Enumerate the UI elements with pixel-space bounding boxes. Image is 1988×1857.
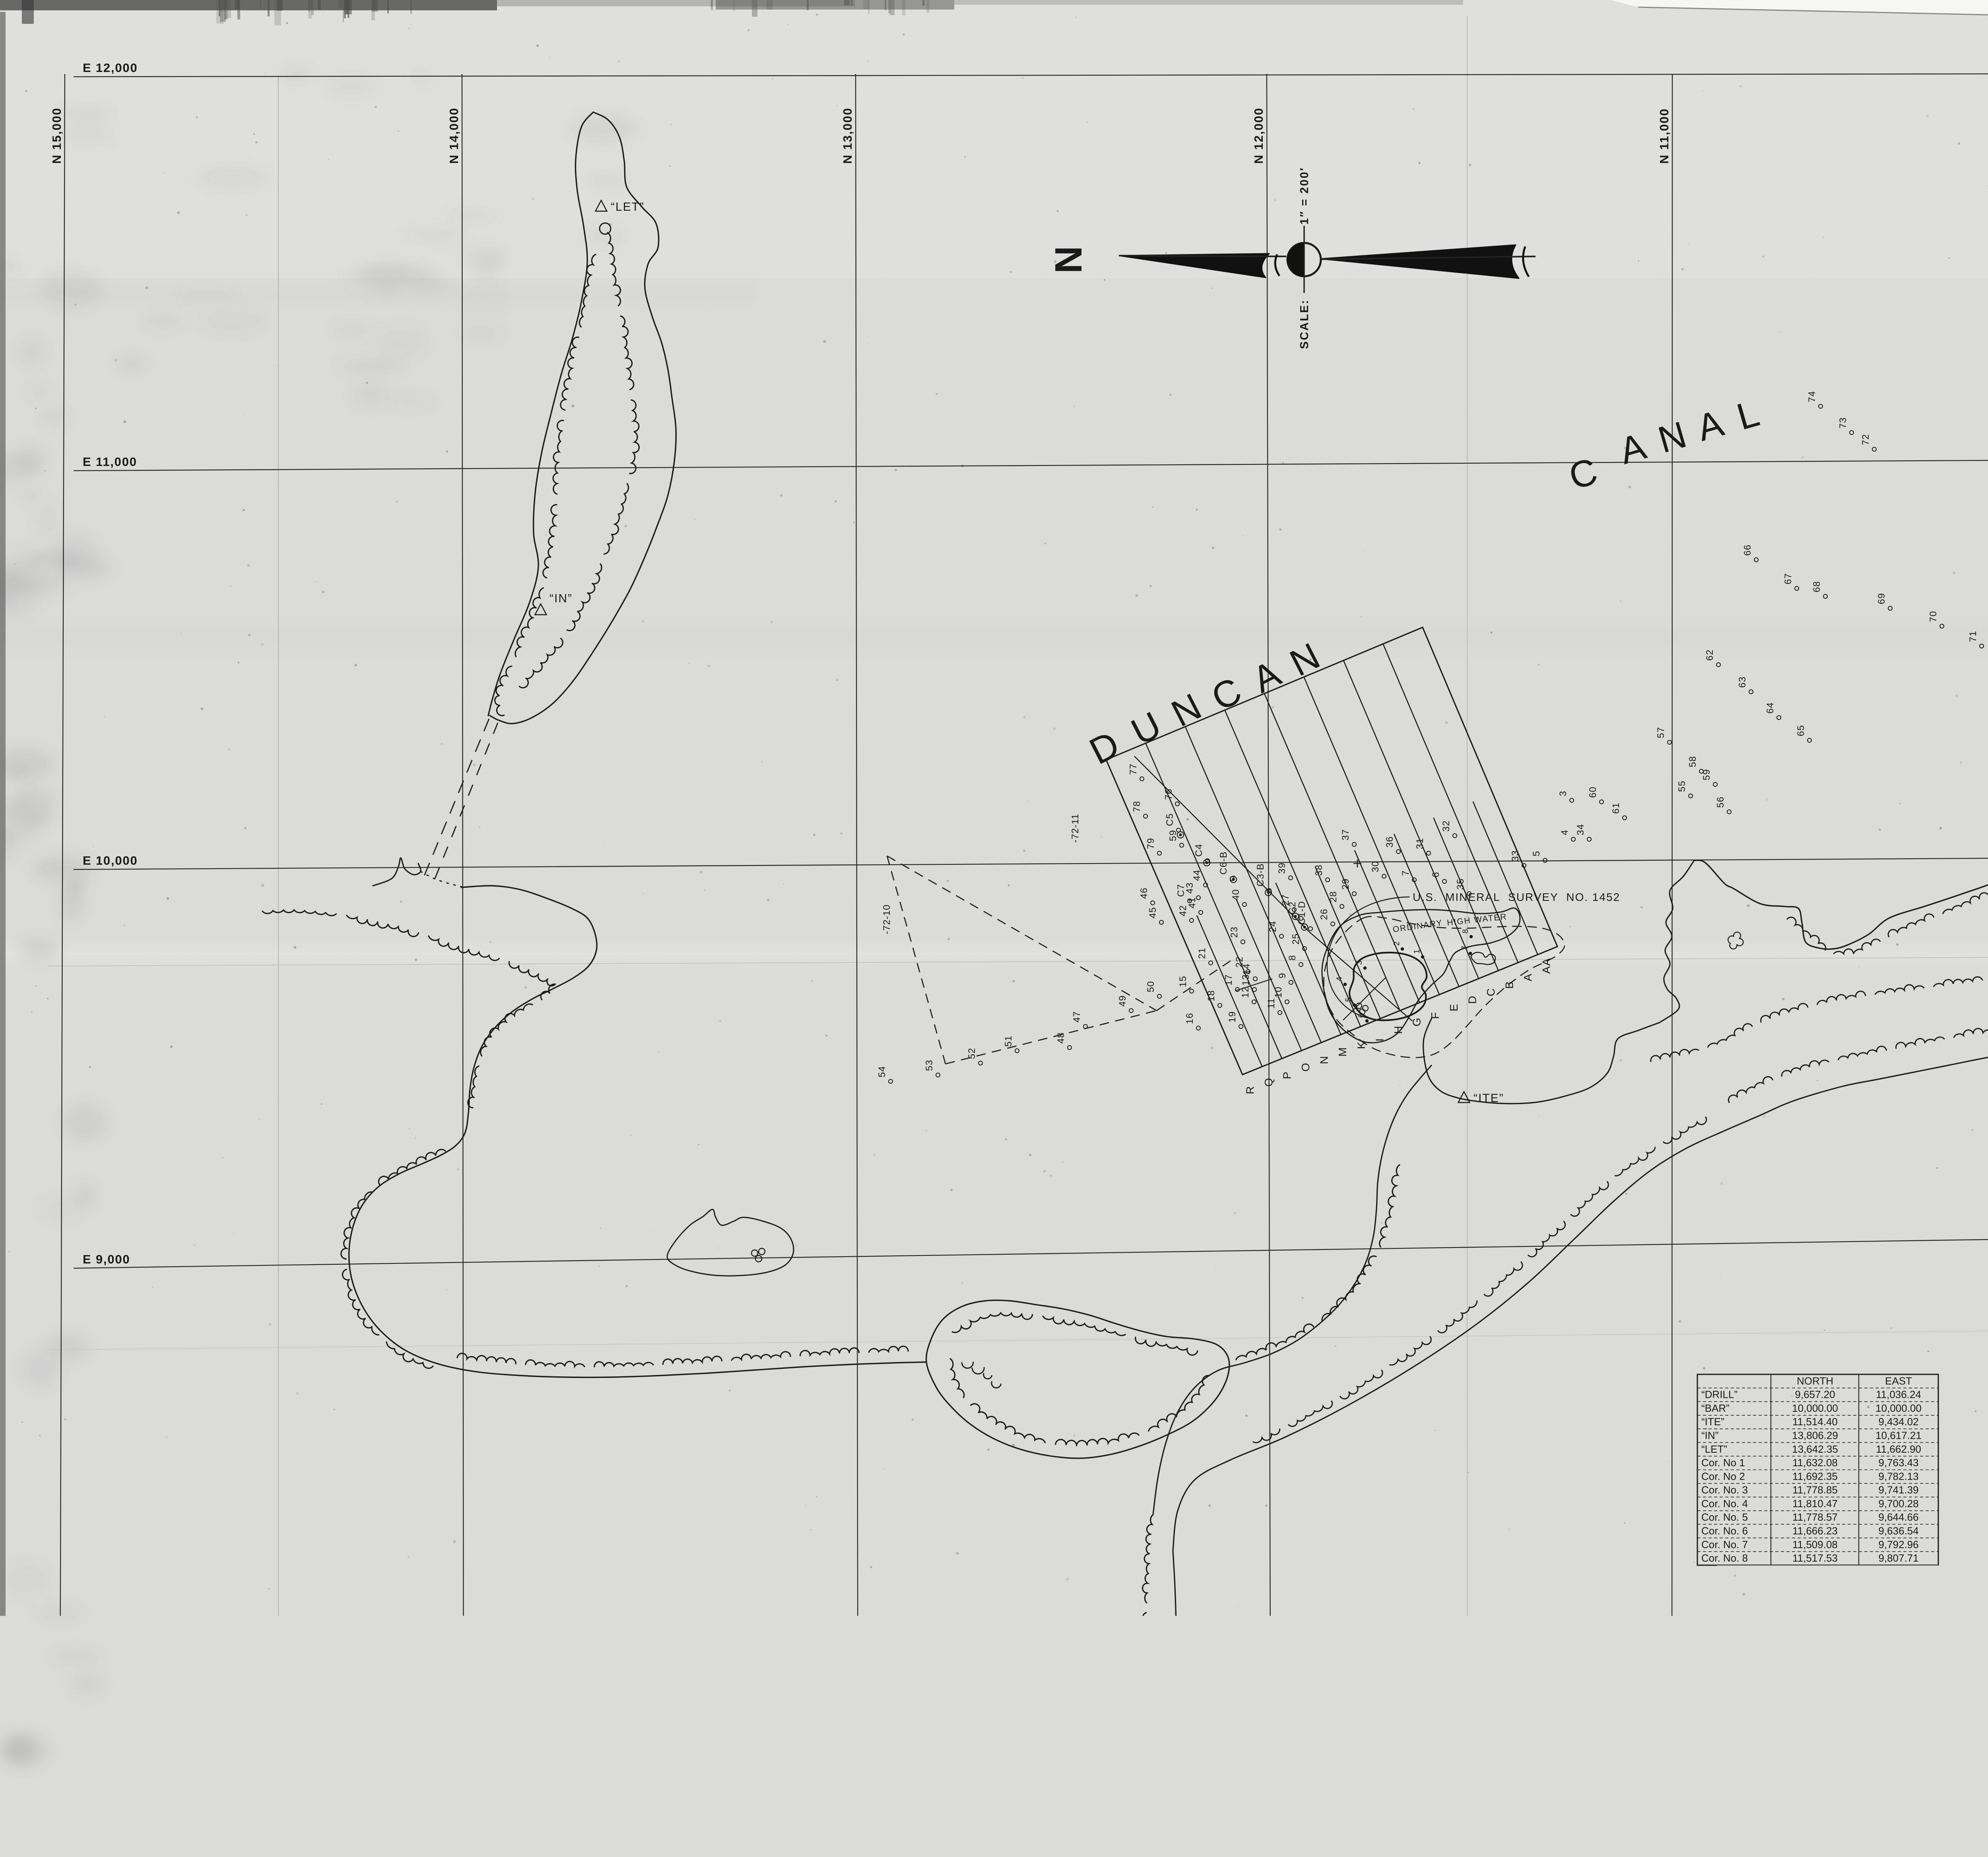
svg-text:76: 76	[1163, 788, 1174, 800]
svg-text:C1-D: C1-D	[1297, 901, 1307, 925]
svg-text:“ITE”: “ITE”	[1474, 1092, 1504, 1105]
svg-text:10,617.21: 10,617.21	[1875, 1430, 1922, 1442]
svg-text:10,000.00: 10,000.00	[1875, 1402, 1922, 1414]
svg-text:“IN”: “IN”	[549, 592, 573, 605]
svg-text:CASTLE: CASTLE	[961, 1694, 1242, 1760]
svg-text:71: 71	[1968, 631, 1978, 642]
svg-text:9,657.20: 9,657.20	[1795, 1389, 1835, 1401]
svg-text:59: 59	[1168, 830, 1178, 841]
svg-text:9,644.66: 9,644.66	[1878, 1511, 1918, 1523]
svg-text:C5: C5	[1165, 813, 1175, 826]
svg-text:9,700.28: 9,700.28	[1878, 1498, 1918, 1510]
svg-text:13,806.29: 13,806.29	[1792, 1430, 1838, 1442]
svg-text:18: 18	[1206, 990, 1217, 1001]
svg-text:Cor. No. 7: Cor. No. 7	[1701, 1539, 1748, 1550]
svg-text:AA: AA	[1540, 958, 1553, 974]
svg-text:11,514.40: 11,514.40	[1792, 1416, 1838, 1428]
svg-text:3: 3	[1355, 960, 1364, 965]
svg-text:9,763.43: 9,763.43	[1878, 1457, 1918, 1469]
svg-text:“LET”: “LET”	[611, 200, 645, 213]
svg-text:65: 65	[1796, 725, 1806, 736]
svg-text:35: 35	[1455, 878, 1466, 890]
svg-text:F: F	[1429, 1011, 1441, 1019]
svg-text:14: 14	[1241, 963, 1252, 975]
svg-text:72: 72	[1860, 434, 1871, 445]
svg-text:-72-11: -72-11	[1070, 813, 1081, 843]
svg-text:56: 56	[1715, 796, 1726, 808]
svg-text:8: 8	[1461, 928, 1470, 933]
svg-text:12: 12	[1240, 986, 1251, 998]
svg-text:N 12,000: N 12,000	[1256, 1795, 1270, 1852]
svg-text:38: 38	[1314, 864, 1324, 876]
svg-text:43: 43	[1184, 882, 1195, 894]
svg-text:11,036.24: 11,036.24	[1876, 1389, 1921, 1401]
svg-text:63: 63	[1737, 676, 1748, 688]
svg-text:70: 70	[1928, 611, 1939, 622]
svg-text:48: 48	[1056, 1032, 1066, 1044]
svg-text:74: 74	[1807, 391, 1817, 402]
svg-text:9,434.02: 9,434.02	[1878, 1416, 1918, 1428]
svg-text:73: 73	[1838, 417, 1848, 429]
svg-text:78: 78	[1132, 801, 1142, 812]
svg-text:N 15,000: N 15,000	[50, 107, 64, 164]
svg-text:Cor. No 1: Cor. No 1	[1701, 1457, 1745, 1469]
svg-text:N 14,000: N 14,000	[448, 1795, 462, 1852]
svg-text:19: 19	[1227, 1011, 1238, 1023]
svg-text:52: 52	[967, 1048, 977, 1059]
svg-text:61: 61	[1611, 802, 1621, 814]
svg-text:41: 41	[1187, 897, 1198, 908]
svg-text:60: 60	[1588, 786, 1598, 798]
svg-text:U.S. MINERAL SURVEY NO. 145: U.S. MINERAL SURVEY NO. 1452	[1413, 891, 1620, 903]
svg-text:11,692.35: 11,692.35	[1792, 1470, 1838, 1482]
svg-text:11,517.53: 11,517.53	[1792, 1552, 1838, 1564]
svg-text:9,636.54: 9,636.54	[1878, 1525, 1918, 1537]
svg-text:3: 3	[1558, 791, 1569, 796]
svg-text:10,000.00: 10,000.00	[1792, 1402, 1838, 1414]
svg-text:C3-B: C3-B	[1255, 863, 1266, 887]
svg-text:11,810.47: 11,810.47	[1792, 1498, 1838, 1510]
svg-text:Cor. No. 8: Cor. No. 8	[1701, 1552, 1748, 1564]
svg-text:5: 5	[1344, 997, 1353, 1002]
svg-text:17: 17	[1223, 974, 1234, 986]
svg-text:G: G	[1411, 1017, 1423, 1026]
svg-text:11,778.57: 11,778.57	[1792, 1511, 1838, 1523]
svg-text:Cor. No. 4: Cor. No. 4	[1701, 1498, 1748, 1510]
svg-text:9: 9	[1277, 973, 1288, 978]
svg-text:34: 34	[1575, 824, 1586, 835]
svg-text:N 12,000: N 12,000	[1252, 107, 1266, 164]
svg-text:N 11,000: N 11,000	[1657, 108, 1671, 164]
svg-text:44: 44	[1192, 869, 1202, 881]
svg-text:6: 6	[1431, 872, 1441, 877]
svg-text:50: 50	[1145, 981, 1156, 992]
svg-text:31: 31	[1415, 838, 1425, 849]
svg-text:30: 30	[1370, 861, 1381, 872]
svg-text:9,741.39: 9,741.39	[1878, 1484, 1918, 1496]
svg-text:55: 55	[1677, 780, 1687, 792]
svg-text:Cor. No 2: Cor. No 2	[1701, 1470, 1745, 1482]
svg-text:C6-B: C6-B	[1218, 851, 1229, 875]
svg-text:N: N	[1318, 1056, 1330, 1064]
svg-text:7: 7	[1460, 945, 1469, 950]
svg-text:4: 4	[1559, 830, 1570, 835]
svg-text:64: 64	[1765, 702, 1776, 714]
svg-text:N 15,000: N 15,000	[45, 1795, 58, 1852]
svg-text:E 10,000: E 10,000	[83, 854, 138, 867]
svg-text:33: 33	[1510, 850, 1521, 862]
svg-text:NORTH: NORTH	[1797, 1375, 1833, 1387]
svg-text:9,792.96: 9,792.96	[1878, 1539, 1918, 1550]
svg-text:2: 2	[1392, 941, 1401, 946]
svg-text:11,778.85: 11,778.85	[1792, 1484, 1838, 1496]
svg-text:Cor. No. 3: Cor. No. 3	[1701, 1484, 1748, 1496]
svg-text:7: 7	[1400, 870, 1411, 876]
svg-text:N: N	[1047, 246, 1090, 274]
svg-text:62: 62	[1705, 649, 1715, 661]
svg-text:N 13,000: N 13,000	[841, 107, 854, 164]
svg-text:C: C	[1485, 988, 1497, 996]
svg-text:1: 1	[1413, 949, 1421, 954]
svg-text:E 12,000: E 12,000	[83, 61, 138, 75]
svg-text:21: 21	[1197, 947, 1208, 959]
svg-text:“ITE”: “ITE”	[1701, 1416, 1724, 1428]
svg-text:11: 11	[1266, 998, 1277, 1009]
svg-text:11,509.08: 11,509.08	[1792, 1539, 1838, 1550]
svg-text:23: 23	[1229, 926, 1240, 938]
svg-text:C4: C4	[1194, 844, 1204, 857]
svg-text:N 11,000: N 11,000	[1657, 1796, 1671, 1852]
svg-text:16: 16	[1184, 1013, 1195, 1024]
svg-text:GROUP: GROUP	[1984, 1694, 1988, 1760]
svg-text:-72-10: -72-10	[881, 904, 892, 934]
svg-text:“IN”: “IN”	[1701, 1430, 1718, 1442]
svg-text:28: 28	[1328, 891, 1339, 902]
svg-text:25: 25	[1291, 933, 1301, 945]
svg-text:“DRILL”: “DRILL”	[1701, 1389, 1738, 1401]
svg-text:M: M	[1336, 1047, 1349, 1057]
svg-text:26: 26	[1319, 908, 1330, 920]
svg-text:69: 69	[1876, 593, 1887, 604]
svg-text:40: 40	[1231, 889, 1241, 900]
svg-text:47: 47	[1072, 1011, 1082, 1023]
svg-text:“BAR”: “BAR”	[1701, 1402, 1730, 1414]
svg-text:ISLAND: ISLAND	[1447, 1694, 1726, 1761]
svg-text:D: D	[1466, 995, 1478, 1004]
svg-text:11,666.23: 11,666.23	[1792, 1525, 1838, 1537]
svg-text:EAST: EAST	[1885, 1375, 1912, 1387]
svg-text:59: 59	[1701, 769, 1712, 780]
svg-text:11,632.08: 11,632.08	[1792, 1457, 1838, 1469]
svg-text:51: 51	[1003, 1035, 1014, 1047]
svg-text:58: 58	[1687, 756, 1698, 767]
svg-text:49: 49	[1117, 995, 1128, 1007]
svg-text:10: 10	[1273, 986, 1284, 998]
svg-text:54: 54	[877, 1066, 887, 1077]
svg-text:9,807.71: 9,807.71	[1878, 1552, 1918, 1564]
svg-text:Q: Q	[1262, 1077, 1275, 1087]
svg-text:57: 57	[1656, 727, 1666, 738]
svg-text:“LET”: “LET”	[1701, 1443, 1727, 1455]
svg-text:37: 37	[1340, 829, 1351, 840]
svg-text:36: 36	[1384, 836, 1395, 848]
svg-text:67: 67	[1783, 573, 1794, 584]
svg-text:8: 8	[1287, 955, 1298, 961]
svg-text:77: 77	[1128, 763, 1139, 775]
svg-text:O: O	[1299, 1062, 1312, 1071]
svg-text:45: 45	[1147, 907, 1158, 918]
svg-text:39: 39	[1277, 862, 1287, 874]
svg-text:29: 29	[1340, 878, 1351, 890]
svg-text:53: 53	[924, 1059, 935, 1071]
svg-text:66: 66	[1742, 544, 1753, 556]
svg-text:Cor. No. 6: Cor. No. 6	[1701, 1525, 1748, 1537]
svg-text:N 14,000: N 14,000	[447, 107, 461, 164]
svg-text:E: E	[1448, 1003, 1460, 1011]
svg-text:C2: C2	[1287, 901, 1298, 914]
svg-text:4: 4	[1335, 976, 1344, 981]
svg-text:9,782.13: 9,782.13	[1878, 1470, 1918, 1482]
svg-text:15: 15	[1178, 976, 1188, 987]
svg-text:P: P	[1281, 1071, 1293, 1079]
svg-text:13: 13	[1241, 974, 1251, 986]
svg-text:79: 79	[1145, 838, 1156, 849]
svg-text:E 11,000: E 11,000	[83, 455, 137, 469]
svg-text:Cor. No. 5: Cor. No. 5	[1701, 1511, 1748, 1523]
svg-text:A: A	[1522, 973, 1534, 981]
svg-text:11,662.90: 11,662.90	[1876, 1443, 1921, 1455]
svg-text:SCALE:: SCALE:	[1298, 299, 1311, 349]
svg-text:68: 68	[1811, 581, 1822, 592]
svg-text:1″ = 200′: 1″ = 200′	[1298, 167, 1311, 225]
svg-text:32: 32	[1441, 820, 1452, 832]
svg-text:46: 46	[1139, 887, 1149, 899]
svg-text:24: 24	[1268, 921, 1278, 932]
svg-text:5: 5	[1531, 851, 1542, 856]
svg-text:R: R	[1244, 1086, 1256, 1094]
svg-text:13,642.35: 13,642.35	[1792, 1443, 1838, 1455]
svg-text:N 13,000: N 13,000	[843, 1795, 857, 1852]
svg-text:B: B	[1503, 981, 1516, 989]
svg-text:E 8,000: E 8,000	[83, 1647, 130, 1661]
svg-text:E 9,000: E 9,000	[83, 1252, 130, 1266]
